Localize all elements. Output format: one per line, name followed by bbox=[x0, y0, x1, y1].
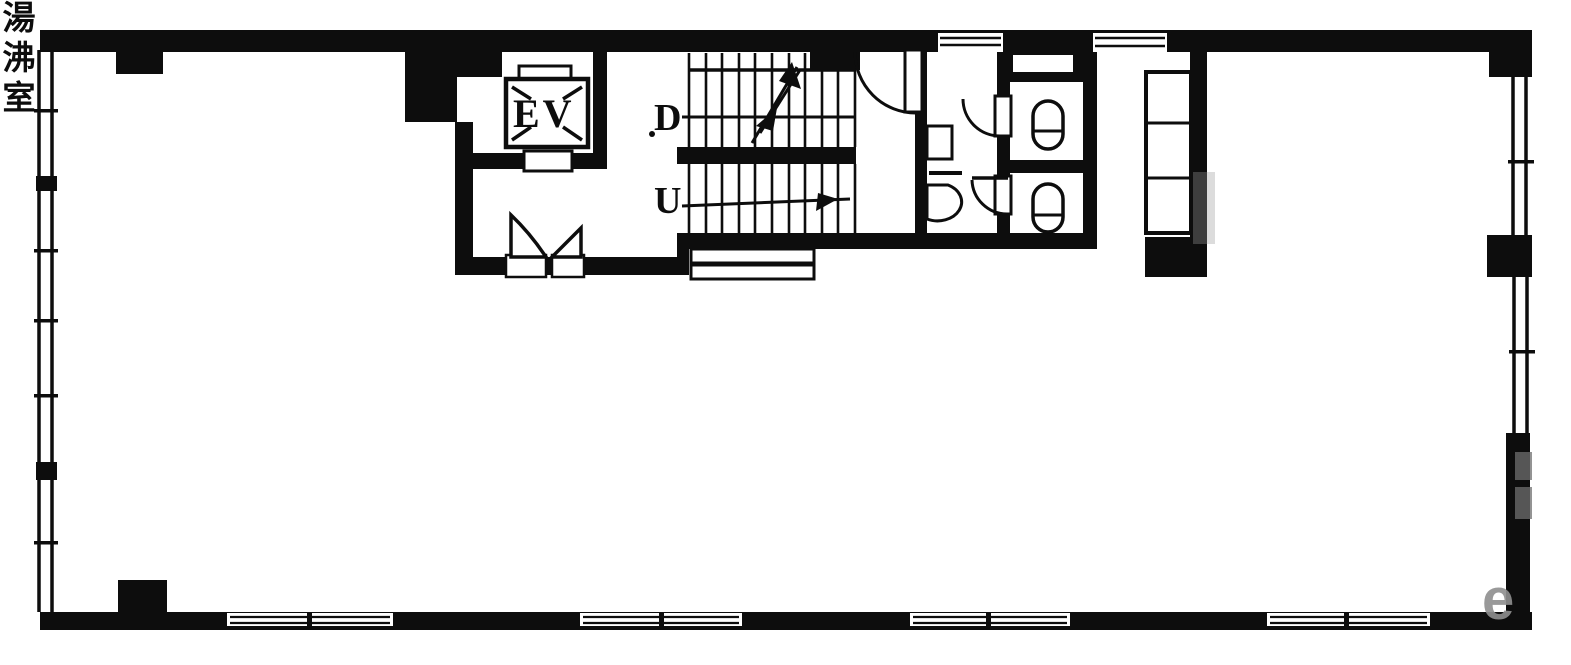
left-window-wall bbox=[34, 50, 58, 612]
pipe-duct-opening bbox=[1013, 55, 1073, 72]
floorplan-canvas: EV D U 湯沸室 e bbox=[0, 0, 1571, 665]
watermark-fragment bbox=[1193, 172, 1215, 244]
left-window-mullion-1 bbox=[36, 176, 57, 191]
stall-door-leaf-2 bbox=[995, 176, 1011, 214]
top-right-corner-column bbox=[1489, 30, 1532, 77]
stairs-down-dot bbox=[649, 131, 655, 137]
left-window-mullion-2 bbox=[36, 462, 57, 480]
elevator-shaft-east-wall bbox=[593, 52, 607, 168]
top-left-column bbox=[116, 52, 163, 74]
stall-door-leaf-1 bbox=[995, 96, 1011, 136]
bottom-window-2 bbox=[580, 613, 742, 626]
washbasin-icon bbox=[927, 126, 952, 159]
lobby-double-door-left-leaf bbox=[511, 215, 546, 257]
kitchenette-cabinet bbox=[1146, 72, 1191, 233]
elevator-door-sill bbox=[524, 151, 572, 171]
bottom-window-3 bbox=[910, 613, 1070, 626]
stairs-up-label: U bbox=[654, 182, 681, 220]
urinal-icon bbox=[927, 185, 962, 221]
top-wall bbox=[40, 30, 1489, 52]
elevator-label: EV bbox=[513, 94, 575, 134]
column-left-of-elevator bbox=[405, 52, 457, 122]
lobby-west-wall bbox=[455, 122, 473, 275]
stairwell-window bbox=[691, 249, 814, 279]
outer-walls bbox=[40, 30, 1532, 630]
bottom-window-1 bbox=[227, 613, 393, 626]
toilet-icon-1 bbox=[1033, 101, 1063, 149]
watermark-fragment bbox=[1515, 487, 1532, 519]
floorplan-drawing bbox=[0, 0, 1571, 665]
stair-landing-bar bbox=[677, 147, 856, 164]
lobby-double-door-right-leaf bbox=[552, 228, 581, 257]
toilet-icon-2 bbox=[1033, 184, 1063, 232]
toilet-area bbox=[855, 50, 1097, 235]
watermark-fragment bbox=[1515, 452, 1532, 480]
right-wall-mid-block bbox=[1487, 235, 1532, 277]
privacy-screen bbox=[929, 171, 962, 175]
watermark-letter: e bbox=[1482, 566, 1514, 633]
stairs-down-label: D bbox=[654, 99, 681, 137]
vestibule-door-leaf bbox=[905, 50, 922, 112]
stall-divider-wall bbox=[1010, 160, 1083, 173]
stair-south-wall bbox=[677, 233, 1097, 249]
bottom-window-4 bbox=[1267, 613, 1430, 626]
stall-east-wall bbox=[1083, 52, 1097, 235]
bottom-left-column bbox=[118, 580, 167, 614]
